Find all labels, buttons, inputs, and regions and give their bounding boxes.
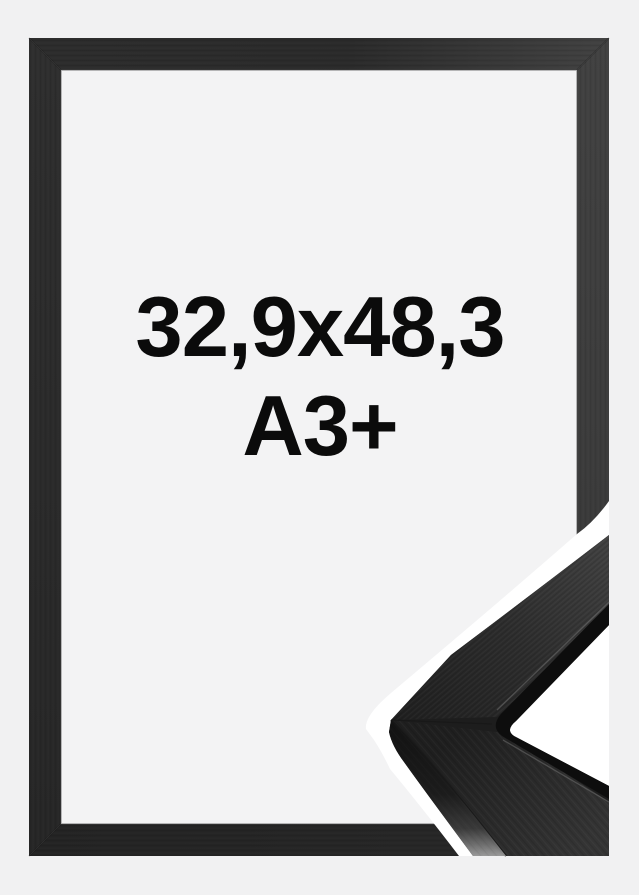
- svg-text:32,9x48,3: 32,9x48,3: [135, 280, 504, 375]
- svg-text:A3+: A3+: [242, 379, 397, 474]
